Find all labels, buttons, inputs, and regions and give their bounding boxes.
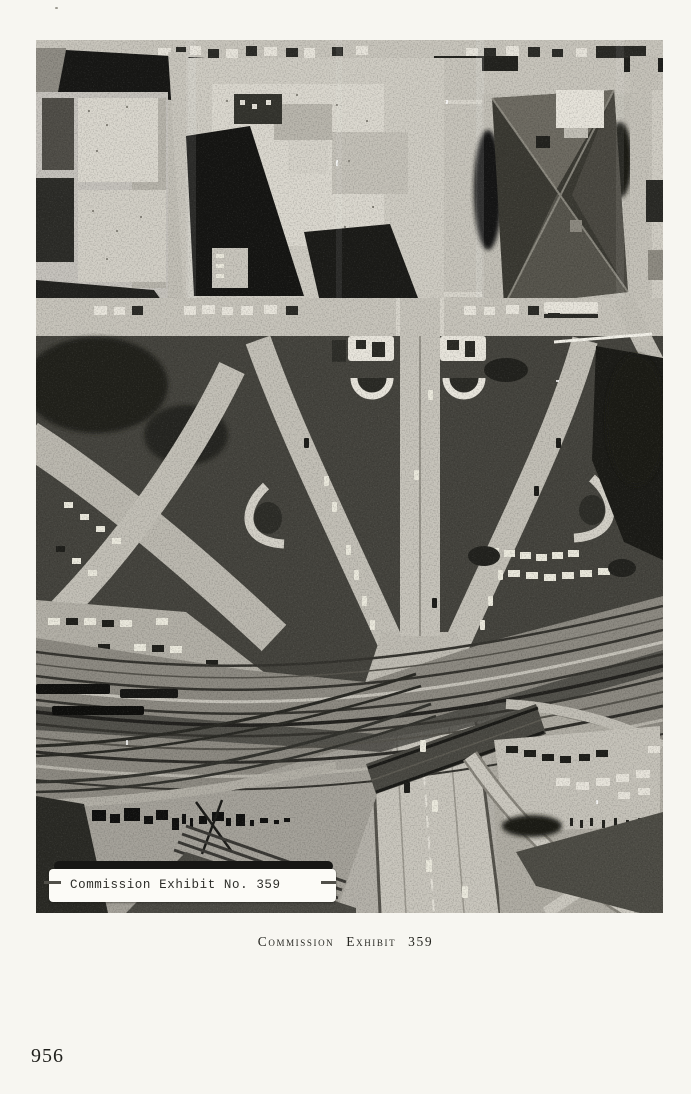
page-number: 956 (31, 1045, 64, 1068)
photo-caption: Commission Exhibit 359 (0, 934, 691, 950)
exhibit-label-left-tick (44, 881, 61, 884)
aerial-photo-art (36, 40, 663, 913)
exhibit-label-right-tick (321, 881, 336, 884)
ink-speck (55, 7, 58, 9)
photo-grain (36, 40, 663, 913)
exhibit-label-text: Commission Exhibit No. 359 (49, 869, 336, 892)
document-page: Commission Exhibit No. 359 Commission Ex… (0, 0, 691, 1094)
exhibit-label-strip: Commission Exhibit No. 359 (49, 869, 336, 902)
exhibit-label: Commission Exhibit No. 359 (44, 858, 342, 910)
aerial-photo: Commission Exhibit No. 359 (36, 40, 663, 913)
